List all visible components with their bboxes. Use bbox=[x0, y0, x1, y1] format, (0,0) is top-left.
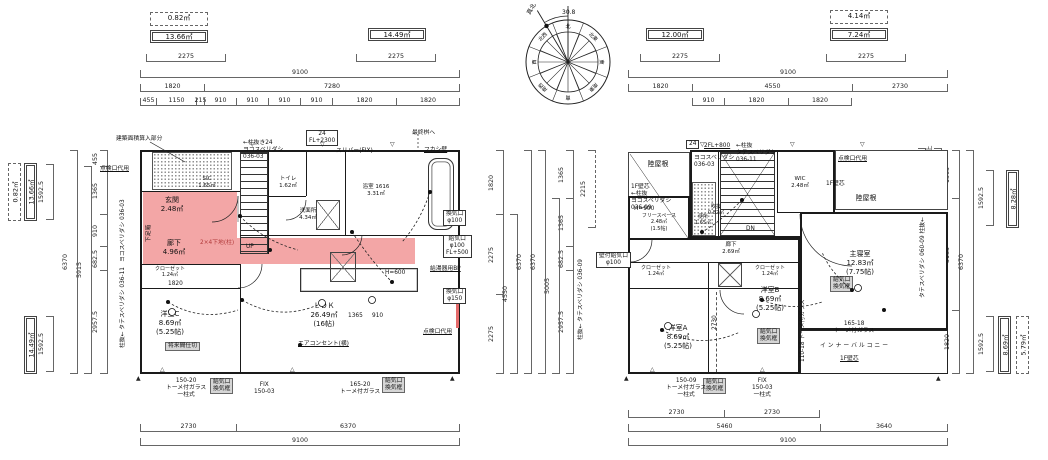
vent-mark: ▽ bbox=[390, 142, 395, 148]
note-window-left-v: 柱抜← タテスベリダシ 036-09 bbox=[578, 259, 585, 340]
note-left-head: 1F壁芯 ←柱抜 ヨコスベリダシ 036-09 bbox=[631, 184, 671, 212]
room-label-master: 主寝室12.83㎡(7.75帖) bbox=[836, 250, 884, 276]
area-box: 13.66㎡ bbox=[24, 163, 37, 221]
wall bbox=[240, 264, 241, 374]
inner-dim-2730: 2730 bbox=[712, 315, 719, 330]
room-label-wic: WIC2.48㎡ bbox=[782, 176, 818, 190]
note-window-16520: 165-20 トーメ付ガラス bbox=[340, 382, 380, 396]
dim-col: 6370 bbox=[70, 150, 78, 374]
dim-row-total: 9100 bbox=[140, 438, 460, 446]
room-label-benjo: 便所1.65㎡ bbox=[690, 214, 716, 227]
dim-row: 910 1820 1820 bbox=[692, 98, 852, 106]
note-water-heater: 給湯器用BP bbox=[430, 266, 461, 273]
area-box: 14.49㎡ bbox=[368, 28, 426, 41]
dim-row-total: 9100 bbox=[140, 70, 460, 78]
dir-n: 北 bbox=[565, 23, 570, 30]
note-window-15009: 150-09 トーメ付ガラス 一柱式 bbox=[666, 378, 706, 399]
vent-mark: △ bbox=[760, 367, 765, 373]
note-inspection-right: 点検口代用 bbox=[423, 329, 452, 336]
stairs-up-label: UP bbox=[246, 244, 254, 251]
room-label-freespace: フリースペース2.48㎡(1.5帖) bbox=[630, 213, 688, 232]
dim-col: 6370 bbox=[966, 150, 974, 374]
closet-dim-label: 1820 bbox=[168, 281, 183, 288]
area-box: 14.49㎡ bbox=[24, 316, 37, 374]
note-2fl800: 2FL+800 bbox=[704, 143, 730, 150]
wall bbox=[268, 150, 269, 254]
room-label-rouka2: 廊下2.69㎡ bbox=[714, 242, 748, 256]
note-1f-kabeshin-roof: 1F壁芯 bbox=[826, 181, 845, 188]
dim-col: 1592.5 bbox=[46, 164, 54, 220]
room-label-bath: 浴室 16163.31㎡ bbox=[352, 184, 400, 198]
area-box-dashed: 0.82㎡ bbox=[150, 12, 208, 26]
area-box-dashed: 4.14㎡ bbox=[830, 10, 888, 24]
note-window-16518: 165-18 トーメ付ガラス bbox=[834, 321, 874, 335]
dim-col: 1592.5 bbox=[46, 316, 54, 372]
closet-hatch-box bbox=[718, 263, 742, 287]
dim-row: 2730 6370 bbox=[140, 424, 460, 432]
note-window-11018: 110-18 トーメ付ガラス bbox=[800, 299, 807, 362]
room-label-toilet: トイレ1.62㎡ bbox=[272, 176, 304, 190]
area-box-dashed: 5.79㎡ bbox=[1016, 316, 1029, 374]
vent-mark: ▽ bbox=[320, 142, 325, 148]
note-1f-kabeshin-balcony: 1F壁芯 bbox=[840, 356, 859, 363]
room-label-roof-right: 陸屋根 bbox=[848, 194, 884, 203]
stairs-dn-label: DN bbox=[746, 226, 755, 233]
north-angle-label: 30.8 bbox=[562, 9, 576, 16]
note-inspection-top: 点検口代用 bbox=[100, 166, 129, 173]
note-win24: 24 bbox=[686, 140, 699, 149]
dim-col-dashed: 2215 bbox=[588, 150, 596, 228]
corridor-dashed-line bbox=[716, 292, 717, 372]
note-supply-frame: 給気口 換気框 bbox=[210, 378, 233, 394]
foundation-vent-mark: ▲ bbox=[450, 376, 455, 382]
dim-col: 5005 bbox=[552, 198, 560, 374]
plan2-balcony-wall bbox=[800, 330, 948, 374]
wall bbox=[306, 150, 307, 196]
true-north-label: 真北 bbox=[525, 4, 538, 16]
room-label-senmen: 洗面所4.34㎡ bbox=[288, 208, 328, 222]
floor-hatch-box bbox=[330, 252, 356, 282]
note-future-partition: 将来間仕切 bbox=[165, 342, 200, 351]
vent-mark: ▽ bbox=[250, 142, 255, 148]
note-supply-frame: 給気口 換気框 bbox=[830, 276, 853, 292]
dim-col: 1820 2275 2275 bbox=[496, 150, 504, 374]
note-aircon-outlet: エアコンセント(横) bbox=[298, 341, 349, 348]
room-label-roof-left: 陸屋根 bbox=[640, 160, 676, 169]
area-box-dashed: 0.82㎡ bbox=[8, 163, 21, 221]
note-inspection-roof: 点検口代用 bbox=[838, 156, 867, 163]
room-label-closet-a: クローゼット1.24㎡ bbox=[634, 265, 678, 278]
room-label-rouka: 廊下4.96㎡ bbox=[152, 239, 196, 257]
room-label-balcony: インナーバルコニー bbox=[820, 343, 890, 350]
dim-col: 6370 bbox=[538, 150, 546, 374]
dim-row-2275-mid: 2275 bbox=[356, 54, 436, 62]
dim-row: 1820 4550 2730 bbox=[628, 84, 948, 92]
area-box: 7.24㎡ bbox=[830, 28, 888, 41]
area-box: 13.66㎡ bbox=[150, 30, 208, 43]
wall bbox=[140, 288, 240, 289]
wall bbox=[777, 212, 835, 213]
note-supply-frame: 給気口 換気框 bbox=[757, 328, 780, 344]
note-fix-15003: FIX 150-03 一柱式 bbox=[752, 378, 773, 399]
note-supply-frame: 給気口 換気框 bbox=[382, 377, 405, 393]
room-label-yoshitsu-a: 洋室A8.69㎡(5.25帖) bbox=[656, 324, 700, 350]
inner-dim-label: 1365 bbox=[348, 313, 363, 320]
dim-col: 1365 1365 682.5 2957.5 bbox=[566, 150, 574, 374]
wall bbox=[240, 235, 460, 236]
area-box: 12.00㎡ bbox=[646, 28, 704, 41]
note-final-basin: 最終桝へ bbox=[412, 130, 435, 137]
foundation-vent-mark: ▲ bbox=[136, 376, 141, 382]
note-vent-100: 換気口 φ100 bbox=[443, 210, 466, 226]
room-label-ldk: ＬＤＫ26.49㎡(16帖) bbox=[298, 302, 350, 328]
dim-row: 455 1150 215 910 910 910 910 1820 1820 bbox=[140, 98, 460, 106]
vent-mark: ▽ bbox=[700, 142, 705, 148]
note-yoko-036-03: ヨコスベリダシ 036-03 bbox=[694, 155, 734, 169]
note-slit-fix: スリバー(FIX) bbox=[336, 148, 373, 155]
note-supply-frame: 給気口 換気框 bbox=[703, 378, 726, 394]
vent-mark: △ bbox=[290, 367, 295, 373]
wall bbox=[345, 150, 346, 235]
foundation-vent-mark: ▲ bbox=[624, 376, 629, 382]
room-label-closet-b: クローゼット1.24㎡ bbox=[748, 265, 792, 278]
dim-col: 1592.5 bbox=[986, 316, 994, 372]
dim-row: 2730 2730 bbox=[628, 410, 820, 418]
true-north-dot bbox=[544, 24, 548, 28]
dim-row-total: 9100 bbox=[628, 70, 948, 78]
floor-plan-sheet: 0.82㎡ 13.66㎡ 14.49㎡ 12.00㎡ 4.14㎡ 7.24㎡ 3… bbox=[0, 0, 1048, 460]
note-window-06009: タテスベリダシ 060-09 柱抜← bbox=[920, 217, 927, 298]
wall bbox=[630, 262, 798, 263]
dim-row-2275-right: 2275 bbox=[826, 54, 906, 62]
dim-col: 1592.5 bbox=[986, 170, 994, 226]
note-fix-15003: FIX 150-03 bbox=[254, 382, 275, 396]
plan1-stairs bbox=[240, 152, 268, 254]
note-hashira-036-11: ←柱抜 タテスベリダシ 036-11 bbox=[736, 143, 776, 164]
vent-mark: ▽ bbox=[860, 142, 865, 148]
dim-row-total: 9100 bbox=[628, 438, 948, 446]
room-label-closet: クローゼット1.24㎡ bbox=[146, 266, 194, 279]
room-label-yoshitsu-b: 洋室B8.69㎡(5.25帖) bbox=[748, 286, 792, 312]
dim-row-2275-left: 2275 bbox=[146, 54, 226, 62]
compass-rose: 30.8 真北 北 北東 東 南東 南 南西 西 北西 bbox=[496, 4, 626, 114]
room-label-sic: SIC1.65㎡ bbox=[190, 176, 224, 190]
dim-row: 1820 7280 bbox=[140, 84, 460, 92]
vent-mark: △ bbox=[650, 367, 655, 373]
note-supply-100: 給気口 φ100 FL+500 bbox=[443, 235, 472, 258]
note-window-left-top: ヨコスベリダシ 036-03 bbox=[120, 199, 127, 262]
inner-dim-label: 910 bbox=[372, 313, 383, 320]
shoebox-label: 下足箱 bbox=[146, 225, 153, 242]
note-window-left-bottom: 柱抜← タテスベリダシ 036-11 bbox=[120, 267, 127, 348]
area-box: 8.69㎡ bbox=[998, 316, 1011, 374]
room-label-genkan: 玄関2.48㎡ bbox=[152, 196, 192, 214]
note-building-area: 建築面積算入部分 bbox=[116, 136, 162, 143]
wall bbox=[777, 150, 778, 212]
room-label-yoshitsu-c: 洋室C8.69㎡(5.25帖) bbox=[147, 310, 193, 336]
wall bbox=[708, 262, 709, 374]
vent-mark: △ bbox=[160, 367, 165, 373]
note-vent-150: 換気口 φ150 bbox=[443, 288, 466, 304]
dir-w: 西 bbox=[532, 59, 538, 64]
vent-mark: ▽ bbox=[790, 142, 795, 148]
dim-row-2275-left: 2275 bbox=[640, 54, 720, 62]
wall bbox=[268, 196, 306, 197]
note-wall-supply-100: 壁付給気口 φ100 bbox=[596, 252, 631, 268]
note-window-15020: 150-20 トーメ付ガラス 一柱式 bbox=[166, 378, 206, 399]
counter-height-label: H=600 bbox=[385, 270, 405, 277]
dim-col: 455 1365 910 682.5 2957.5 bbox=[100, 150, 108, 374]
area-box: 8.28㎡ bbox=[1006, 170, 1019, 228]
note-fukashi-wall: フカシ壁 bbox=[424, 147, 447, 154]
note-2x4-base: 2×4下地(柱) bbox=[200, 240, 234, 247]
dim-col: 5915 bbox=[84, 166, 92, 374]
wall bbox=[140, 191, 240, 192]
dim-row: 5460 3640 bbox=[628, 424, 948, 432]
dim-col: 4550 bbox=[510, 214, 518, 374]
foundation-vent-mark: ▲ bbox=[936, 376, 941, 382]
dir-e: 東 bbox=[598, 59, 605, 64]
dir-s: 南 bbox=[565, 94, 570, 101]
